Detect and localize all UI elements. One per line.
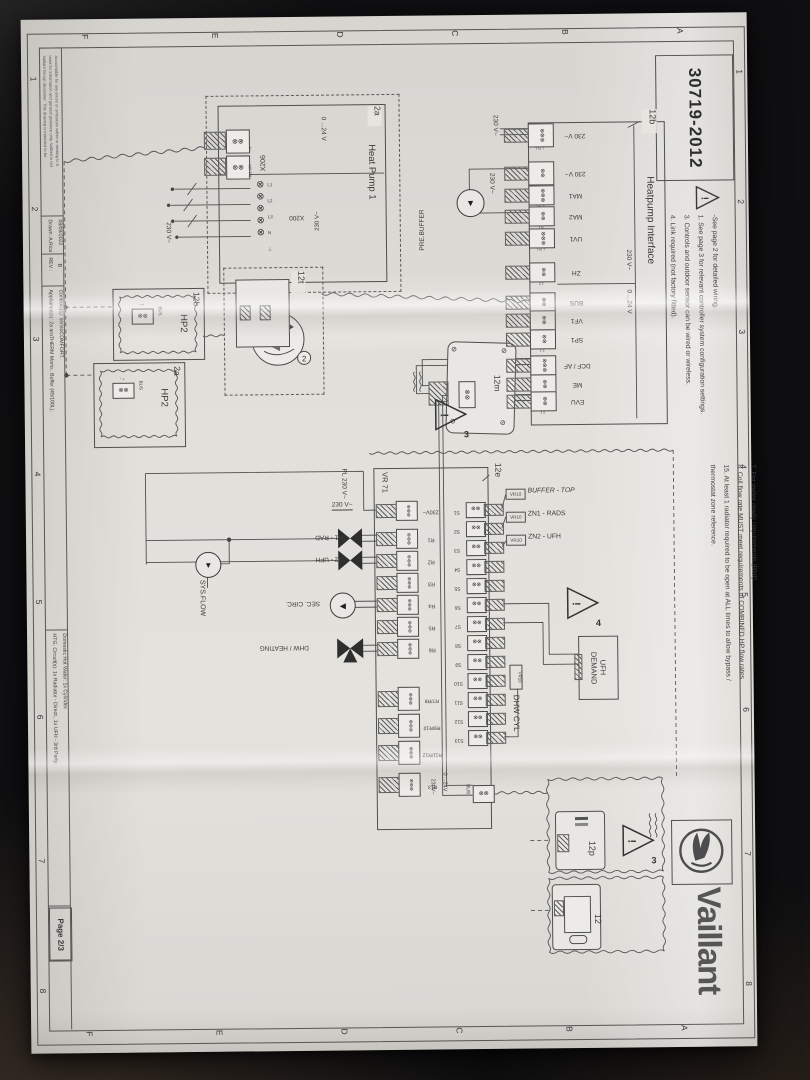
vr71-relay2-label: R7/R8 xyxy=(416,691,448,702)
vr71-sensor-gland xyxy=(484,580,504,592)
zone-number-left: 2 xyxy=(30,207,39,212)
vr71-sensor-gland xyxy=(484,542,504,554)
vr71-sensor-gland xyxy=(484,561,504,573)
ufh-demand-box: UFH DEMAND xyxy=(578,636,619,700)
vr71-relay2-gland xyxy=(378,718,400,734)
vr71-sensor-label: S6 xyxy=(451,600,465,609)
room-stat-screen xyxy=(564,896,591,933)
vr71-sensor-gland xyxy=(485,656,505,668)
zone-number-left: 4 xyxy=(32,472,41,477)
vr71-relay-label: R3 xyxy=(418,576,444,586)
hp2-bus-label: BUS xyxy=(154,306,162,322)
hp2-bus-pins: + - xyxy=(112,375,132,381)
cable-gland xyxy=(204,158,226,176)
wavy-line xyxy=(547,878,550,952)
interface-terminal-pins: 2 1 xyxy=(530,346,554,351)
interface-terminal-label: BUS xyxy=(558,296,596,306)
drawn-date: 08/09/2022 xyxy=(53,219,62,251)
room-stat-terminal xyxy=(554,900,564,916)
cable-gland xyxy=(506,377,532,391)
zone-letter-top: E xyxy=(210,33,219,39)
hp2-bus-terminal: ⊗⊗ xyxy=(112,383,134,399)
vr71-sensor-gland xyxy=(485,599,505,611)
wavy-line xyxy=(64,147,204,163)
sys-flow-pump-icon: ▼ xyxy=(195,552,221,578)
dhw-heating-valve-label: DHW / HEATING xyxy=(251,641,317,652)
receiver-terminal xyxy=(240,305,251,320)
vr71-relay-gland xyxy=(376,576,398,590)
cable-gland xyxy=(506,332,532,346)
hp2-callout: 2a xyxy=(167,366,181,388)
schematic-sheet: 2 30719-2012 ! -See page 2 for detailed … xyxy=(21,12,758,1054)
vr71-relay-gland xyxy=(377,642,399,656)
svg-text:4: 4 xyxy=(596,618,601,628)
vr71-relay2-label: R9/R10 xyxy=(416,718,448,729)
page-number-box: Page 2/3 xyxy=(49,907,73,961)
interface-terminal-label: VF1 xyxy=(558,314,596,324)
vr71-relay-gland xyxy=(377,598,399,612)
vr71-relay-gland xyxy=(376,554,398,568)
ufh-demand-line2: DEMAND xyxy=(589,652,598,685)
warning-triangle-3: ! 3 xyxy=(434,397,476,441)
x200-pin: L3 xyxy=(268,215,273,220)
cable-gland xyxy=(506,358,532,372)
vr71-sensor-label: S11 xyxy=(452,695,466,704)
zone-letter-bottom: C xyxy=(454,1027,463,1033)
diverter-valve-dhw xyxy=(337,638,363,662)
zone-number-right: 7 xyxy=(742,851,751,856)
cable-gland xyxy=(504,167,530,181)
disclaimer-line: accountable for any errors or omissions … xyxy=(52,55,60,211)
interface-terminal-label: ZH xyxy=(557,266,595,276)
dhw-line: Domestic Hot Water: 1x Cylinder. xyxy=(57,633,69,901)
vr10-sensor-name: BUFFER - TOP xyxy=(528,487,575,495)
brand-logo-icon xyxy=(677,824,726,876)
cable-gland xyxy=(507,394,533,408)
wavy-line xyxy=(549,950,664,954)
vr71-sensor-label: S9 xyxy=(451,657,465,666)
room-stat-callout: 12 xyxy=(590,914,602,934)
x206-pin-labels: S21 S20 xyxy=(249,155,257,177)
vr71-relay-block: ⊗⊗⊗ xyxy=(396,551,418,571)
vr71-sensor-gland xyxy=(485,637,505,649)
zone-letter-bottom: B xyxy=(564,1026,573,1032)
wavy-line xyxy=(321,291,529,305)
vr71-sensor-label: S12 xyxy=(452,714,466,723)
cable-gland xyxy=(506,313,532,327)
zone-letter-bottom: E xyxy=(214,1030,223,1036)
interface-lv-range: 0 ...24 V xyxy=(620,289,633,339)
vr71-relay-block: ⊗⊗⊗ xyxy=(397,595,419,615)
revision-label: REV : xyxy=(43,258,52,284)
vr71-relay-block: ⊗⊗⊗ xyxy=(397,617,419,637)
svg-text:!: ! xyxy=(698,197,709,200)
x206-terminal-block: ⊗⊗ xyxy=(226,155,250,179)
interface-terminal-label: ME xyxy=(558,378,596,388)
svg-text:!: ! xyxy=(570,602,582,606)
valve-feed-label: 230 V~ xyxy=(332,501,353,510)
interface-terminal-pins: 1 2 xyxy=(529,279,553,284)
note-line: -See page 2 for detailed wiring. xyxy=(707,215,724,487)
svg-text:3: 3 xyxy=(651,855,656,865)
zone-letter-top: D xyxy=(335,31,344,37)
vr71-relay2-gland xyxy=(378,691,400,707)
vr10-sensor-name: ZN2 - UFH xyxy=(528,533,561,541)
drawing-number-box: 30719-2012 xyxy=(655,54,734,181)
vr71-relay2-label: R13 xyxy=(417,777,449,788)
vr71-sensor-gland xyxy=(485,618,505,630)
prebuffer-pump-icon: ▼ xyxy=(456,189,484,217)
zone-letter-top: B xyxy=(560,29,569,35)
heat-pump-supply-label: 230 V~ xyxy=(161,222,172,262)
vr71-name: VR 71 xyxy=(376,472,388,504)
cable-gland xyxy=(504,189,530,203)
vr71-sensor-gland xyxy=(484,523,504,535)
vr71-relay-gland xyxy=(376,504,398,518)
svg-text:3: 3 xyxy=(464,429,469,439)
wavy-line xyxy=(203,335,224,337)
vr71-sensor-gland xyxy=(486,694,506,706)
revision-value: B xyxy=(53,263,62,277)
sys-flow-label: SYS.FLOW xyxy=(192,580,206,646)
interface-terminal-label: EVU xyxy=(559,395,597,405)
brand-wordmark: Vaillant xyxy=(682,886,730,1038)
zone-number-right: 6 xyxy=(741,707,750,712)
pl-supply-label: PL 230 V~ xyxy=(336,468,348,522)
zone-letter-bottom: A xyxy=(679,1025,688,1031)
vr71-sensor-label: S1 xyxy=(450,505,464,514)
vr71-relay-block: ⊗⊗⊗ xyxy=(396,529,418,549)
vr10-dhw-tag: VR10 xyxy=(509,665,522,690)
cable-gland xyxy=(504,129,530,143)
heat-pump-1-callout: 2a xyxy=(368,106,382,126)
ufh-demand-line1: UFH xyxy=(598,651,607,684)
warning-triangle-3-controls: ! 3 xyxy=(621,823,663,867)
sensor-screw: ⊘ xyxy=(451,346,457,353)
cable-gland xyxy=(505,209,531,223)
zone-letter-top: F xyxy=(80,34,89,39)
vr71-sensor-label: S7 xyxy=(451,619,465,628)
hp2-bus-terminal: ⊗⊗ xyxy=(132,308,154,324)
x206-pin-labels: - + xyxy=(249,129,257,151)
hp2-name: HP2 xyxy=(173,314,188,344)
note-line: 3. Controls and outdoor sensor can be wi… xyxy=(679,215,696,487)
programmer-display-line xyxy=(575,817,588,820)
warning-triangle-4: ! 4 xyxy=(566,586,608,630)
interface-supply-label: 230 V~ xyxy=(488,115,499,155)
heatpump-interface-callout: 12b xyxy=(642,109,657,133)
vr71-relay-block: ⊗⊗⊗ xyxy=(396,573,418,593)
hp2-callout: 12b xyxy=(186,292,200,314)
interface-terminal-label: UV1 xyxy=(557,232,595,242)
vr71-relay-label: 230V~ xyxy=(418,504,444,514)
vr71-sensor-gland xyxy=(486,732,506,744)
drawn-by: Drawn: A.Rice xyxy=(43,220,52,252)
prebuffer-label: PRE.BUFFER xyxy=(418,179,432,251)
programmer-callout: 12p xyxy=(582,841,596,867)
sec-circ-pump-label: SEC. CIRC. xyxy=(279,597,327,608)
x206-range-label: 0 ...24 V xyxy=(316,117,327,163)
ufh-demand-terminal xyxy=(574,654,582,680)
svg-text:!: ! xyxy=(625,839,637,843)
sensor-screw: ⊘ xyxy=(501,348,507,355)
vr71-relay2-gland xyxy=(379,777,401,793)
wavy-line xyxy=(548,777,663,781)
vr10-tag: VR10 xyxy=(506,489,526,500)
wavy-line xyxy=(414,372,416,392)
wavy-line xyxy=(549,876,664,880)
cable-gland xyxy=(204,132,226,150)
vr71-sensor-gland xyxy=(484,504,504,516)
vr71-sensor-gland xyxy=(485,675,505,687)
zone-number-right: 2 xyxy=(736,199,745,204)
x200-range-label: 230 V~ xyxy=(314,199,325,231)
x200-pin: N xyxy=(268,231,271,236)
zone-number-left: 6 xyxy=(35,715,44,720)
vr71-sensor-label: S10 xyxy=(452,676,466,685)
vr71-bus-terminal: ⊗⊗ xyxy=(473,785,495,803)
wavy-line xyxy=(549,870,664,874)
heatpump-interface-title: Heatpump Interface xyxy=(639,176,657,332)
room-stat-button xyxy=(569,935,587,944)
notes-list-right: 7. For meter ready requirements (RHI).8.… xyxy=(665,464,762,765)
vr71-relay-label: R5 xyxy=(419,620,445,630)
wavy-line xyxy=(493,791,548,794)
receiver-terminal xyxy=(260,305,271,320)
interface-terminal-label: MA1 xyxy=(556,189,594,199)
zone-letter-bottom: D xyxy=(339,1028,348,1034)
heat-pump-1-title: Heat Pump 1 xyxy=(362,144,377,254)
zone-number-left: 7 xyxy=(36,859,45,864)
x200-pin: L1 xyxy=(267,183,272,188)
vr71-sensor-gland xyxy=(486,713,506,725)
outdoor-sensor-callout: 12m xyxy=(487,375,501,413)
zone-number-right: 3 xyxy=(737,329,746,334)
receiver-callout: 12t xyxy=(291,271,305,293)
vr71-sensor-label: S5 xyxy=(451,581,465,590)
interface-terminal-label: DCF / AF xyxy=(558,359,596,369)
zone-letter-top: C xyxy=(450,30,459,36)
wavy-line xyxy=(369,449,673,454)
vr71-relay2-label: R11/R12 xyxy=(416,745,448,756)
zone-number-right: 8 xyxy=(744,981,753,986)
vr71-relay-gland xyxy=(376,532,398,546)
zone-number-left: 1 xyxy=(28,77,37,82)
x206-label: X206 xyxy=(260,129,272,171)
vr71-relay-label: R6 xyxy=(419,642,445,652)
interface-terminal-label: 230 V~ xyxy=(556,167,594,177)
vr71-sensor-label: S2 xyxy=(450,524,464,533)
vr71-sensor-label: S4 xyxy=(450,562,464,571)
zone-number-left: 3 xyxy=(31,337,40,342)
vr71-sensor-label: S3 xyxy=(450,543,464,552)
interface-hv-range: 230 V~ xyxy=(620,249,632,285)
x200-pin: ⊥ xyxy=(268,247,272,252)
zone-letter-bottom: F xyxy=(84,1031,93,1036)
vr71-relay-label: R4 xyxy=(419,598,445,608)
dhw-cylinder-sensor-label: DHW CYL xyxy=(505,695,521,757)
drawing-number: 30719-2012 xyxy=(684,67,705,168)
title-block-divider xyxy=(48,959,70,960)
sensor-screw: ⊘ xyxy=(500,420,506,427)
hp2-bus-label: BUS xyxy=(134,381,142,397)
zn2-valve-label: ZN2 - UFH xyxy=(308,552,354,562)
cable-gland xyxy=(506,295,532,309)
x206-terminal-block: ⊗⊗ xyxy=(226,129,250,153)
vr71-relay-gland xyxy=(377,620,399,634)
vr71-callout: 12e xyxy=(489,463,502,485)
svg-text:!: ! xyxy=(438,413,450,417)
interface-terminal-label: 230 V~ xyxy=(556,129,594,139)
interface-terminal-pins: ⊥ N L xyxy=(528,144,552,149)
wavy-line xyxy=(420,372,422,392)
vr10-sensor-name: ZN1 - RADS xyxy=(528,510,566,518)
page-number: Page 2/3 xyxy=(56,918,65,951)
note-line: 1. See page 3 for relevant controller sy… xyxy=(693,215,710,487)
vr71-sensor-label: S13 xyxy=(452,733,466,742)
zone-letter-top: A xyxy=(675,28,684,34)
hp2-name: HP2 xyxy=(153,388,168,418)
cable-gland xyxy=(505,265,531,279)
x200-pin: L2 xyxy=(267,199,272,204)
vr71-relay2-gland xyxy=(378,745,400,761)
wavy-line xyxy=(662,877,665,951)
vr71-bus-label: BUS xyxy=(460,784,470,802)
zone-number-left: 8 xyxy=(38,989,47,994)
vr10-tag: VR10 xyxy=(506,535,526,546)
interface-terminal-label: SP1 xyxy=(558,333,596,343)
cable-gland xyxy=(505,231,531,245)
x200-label: X200 xyxy=(285,211,309,221)
zn1-valve-label: ZN1 - RAD xyxy=(308,530,354,540)
note-line: 4. Link required (not factory fitted). xyxy=(665,215,682,487)
vr71-relay-block: ⊗⊗⊗ xyxy=(396,501,418,521)
zone-number-right: 1 xyxy=(734,69,743,74)
zone-number-right: 4 xyxy=(738,464,747,469)
zone-number-right: 5 xyxy=(740,592,749,597)
junction-dot xyxy=(227,537,231,541)
interface-terminal-label: MA2 xyxy=(557,210,595,220)
vr71-relay-block: ⊗⊗⊗ xyxy=(397,639,419,659)
interface-terminal-pins: ⊥ N L xyxy=(529,245,553,250)
vr10-tag: VR10 xyxy=(506,512,526,523)
x200-screw-terminals: ⊗⊗⊗⊗⊗ xyxy=(248,180,265,260)
sec-circ-pump-icon: ◀ xyxy=(330,592,356,618)
interface-terminal-pins: 2 1 xyxy=(531,408,555,413)
notes-warning-icon: ! xyxy=(694,185,720,211)
zone-number-left: 5 xyxy=(34,600,43,605)
programmer-terminal xyxy=(557,834,569,852)
interface-supply-label: 230 V~ xyxy=(484,173,495,213)
photo-of-wiring-diagram: { "window": { "drawing_number": "30719-2… xyxy=(0,0,810,1080)
vr71-relay-label: R2 xyxy=(418,554,444,564)
hp2-bus-pins: + - xyxy=(132,300,152,306)
programmer-display-line xyxy=(575,823,588,826)
vr71-sensor-label: S8 xyxy=(451,638,465,647)
vr71-relay-label: R1 xyxy=(418,532,444,542)
